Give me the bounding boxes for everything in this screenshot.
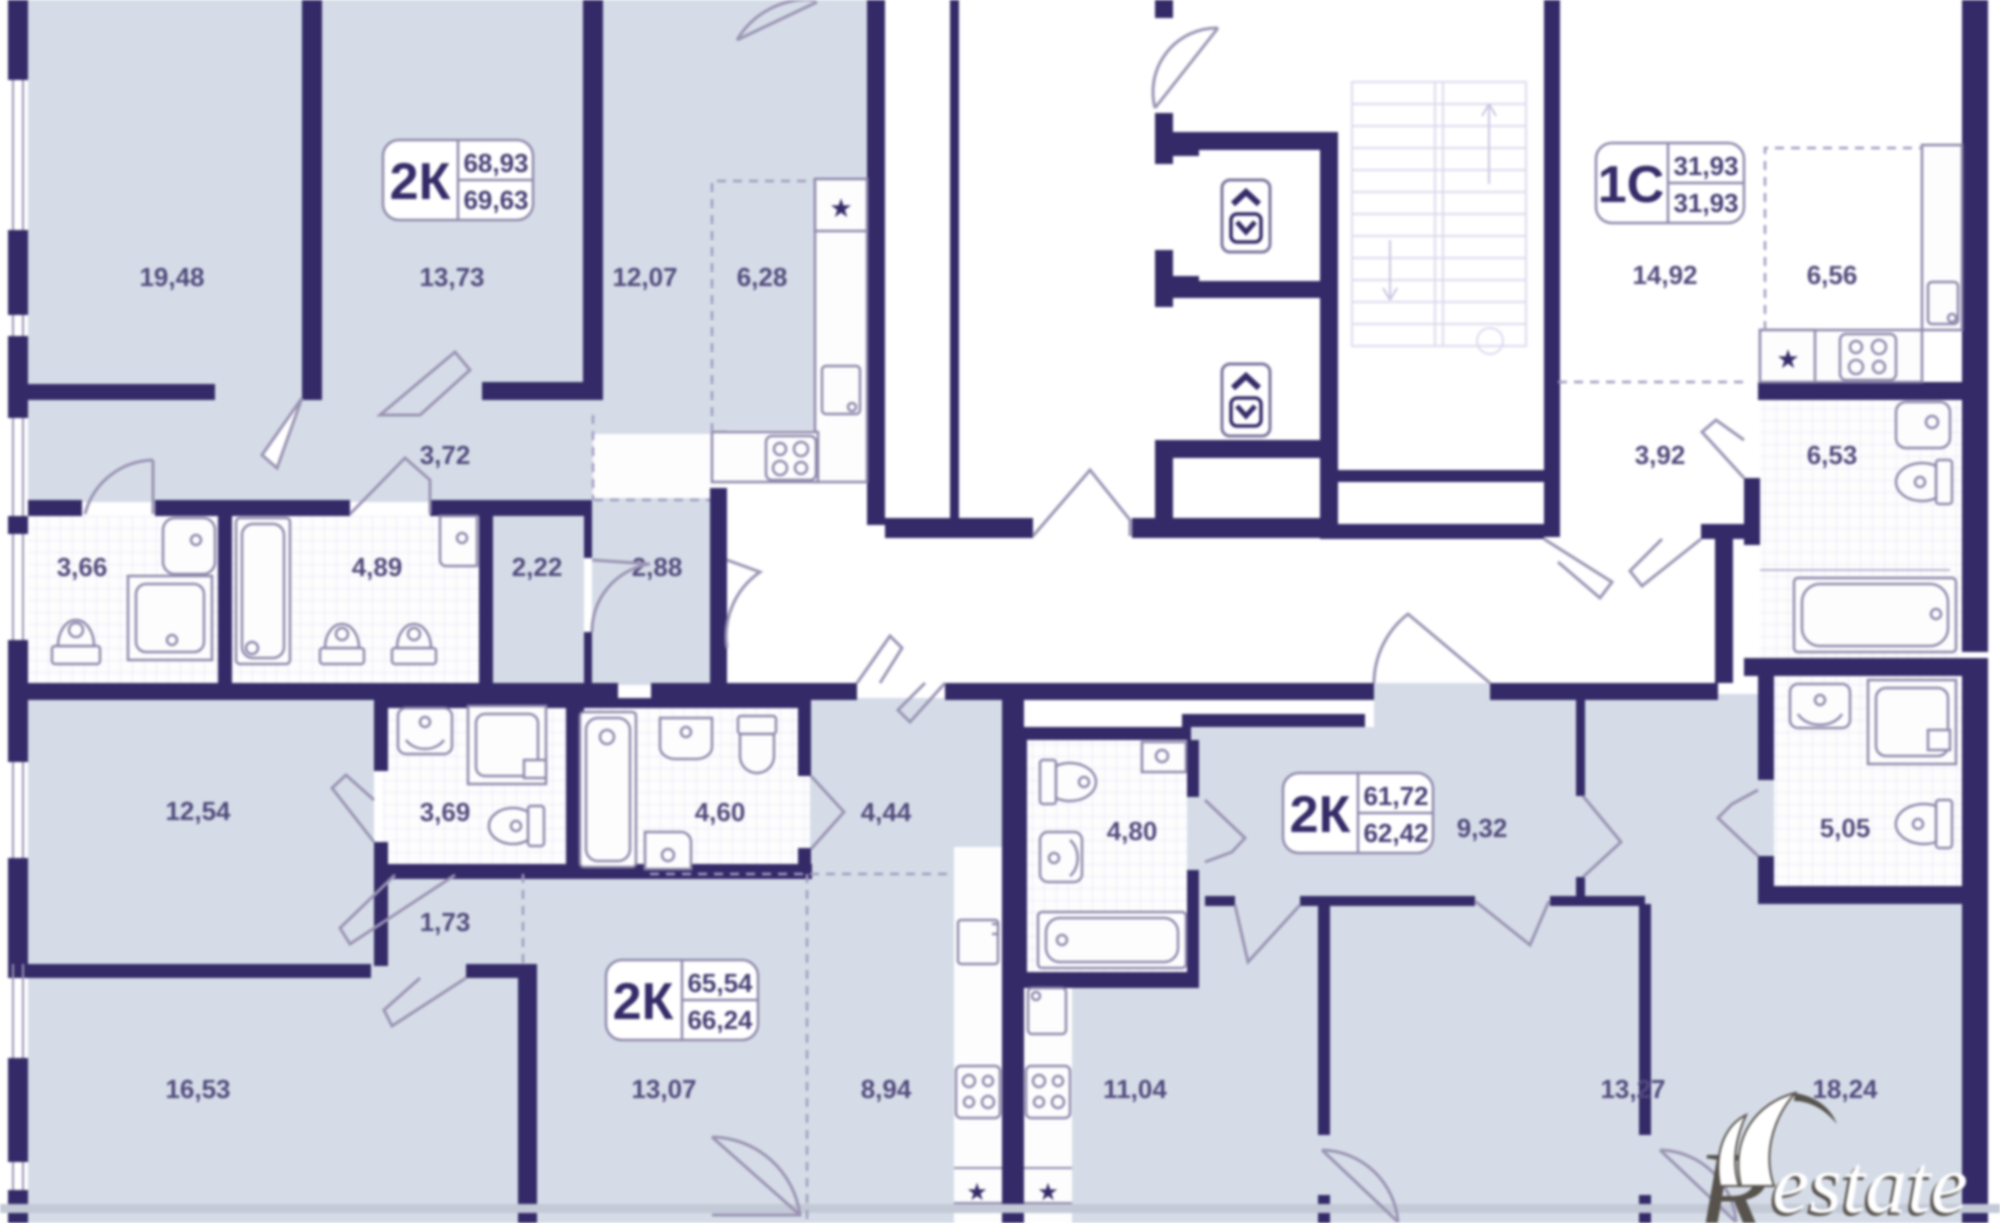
svg-text:★: ★: [1776, 344, 1799, 374]
svg-text:12,07: 12,07: [612, 262, 677, 292]
svg-text:14,92: 14,92: [1632, 260, 1697, 290]
svg-text:31,93: 31,93: [1673, 151, 1738, 181]
svg-text:2К: 2К: [390, 153, 451, 211]
svg-text:6,28: 6,28: [737, 262, 788, 292]
svg-text:4,80: 4,80: [1107, 816, 1158, 846]
svg-text:12,54: 12,54: [165, 796, 231, 826]
svg-text:3,69: 3,69: [420, 797, 471, 827]
svg-text:2К: 2К: [1290, 786, 1351, 844]
svg-text:6,56: 6,56: [1807, 260, 1858, 290]
svg-text:1,73: 1,73: [420, 907, 471, 937]
svg-text:3,92: 3,92: [1635, 440, 1686, 470]
svg-text:4,44: 4,44: [861, 797, 912, 827]
svg-text:65,54: 65,54: [687, 968, 753, 998]
svg-text:9,32: 9,32: [1457, 813, 1508, 843]
svg-text:4,60: 4,60: [695, 797, 746, 827]
svg-text:69,63: 69,63: [463, 185, 528, 215]
svg-text:13,07: 13,07: [631, 1074, 696, 1104]
svg-text:estate: estate: [1772, 1138, 1968, 1223]
svg-text:2К: 2К: [613, 973, 674, 1031]
svg-text:8,94: 8,94: [861, 1074, 912, 1104]
svg-text:5,05: 5,05: [1820, 813, 1871, 843]
svg-text:13,27: 13,27: [1600, 1074, 1665, 1104]
svg-text:★: ★: [966, 1179, 988, 1206]
svg-text:31,93: 31,93: [1673, 188, 1738, 218]
svg-text:13,73: 13,73: [419, 262, 484, 292]
svg-text:19,48: 19,48: [139, 262, 204, 292]
svg-text:3,66: 3,66: [57, 552, 108, 582]
svg-text:4,89: 4,89: [352, 552, 403, 582]
svg-text:18,24: 18,24: [1812, 1074, 1878, 1104]
svg-text:★: ★: [829, 193, 852, 223]
svg-text:1С: 1С: [1598, 156, 1664, 214]
svg-text:3,72: 3,72: [420, 440, 471, 470]
svg-text:68,93: 68,93: [463, 148, 528, 178]
svg-text:2,22: 2,22: [512, 552, 563, 582]
svg-text:61,72: 61,72: [1363, 781, 1428, 811]
svg-text:16,53: 16,53: [165, 1074, 230, 1104]
svg-text:62,42: 62,42: [1363, 818, 1428, 848]
svg-text:11,04: 11,04: [1103, 1074, 1167, 1104]
svg-text:66,24: 66,24: [687, 1005, 753, 1035]
svg-text:6,53: 6,53: [1807, 440, 1858, 470]
svg-text:★: ★: [1037, 1179, 1059, 1206]
